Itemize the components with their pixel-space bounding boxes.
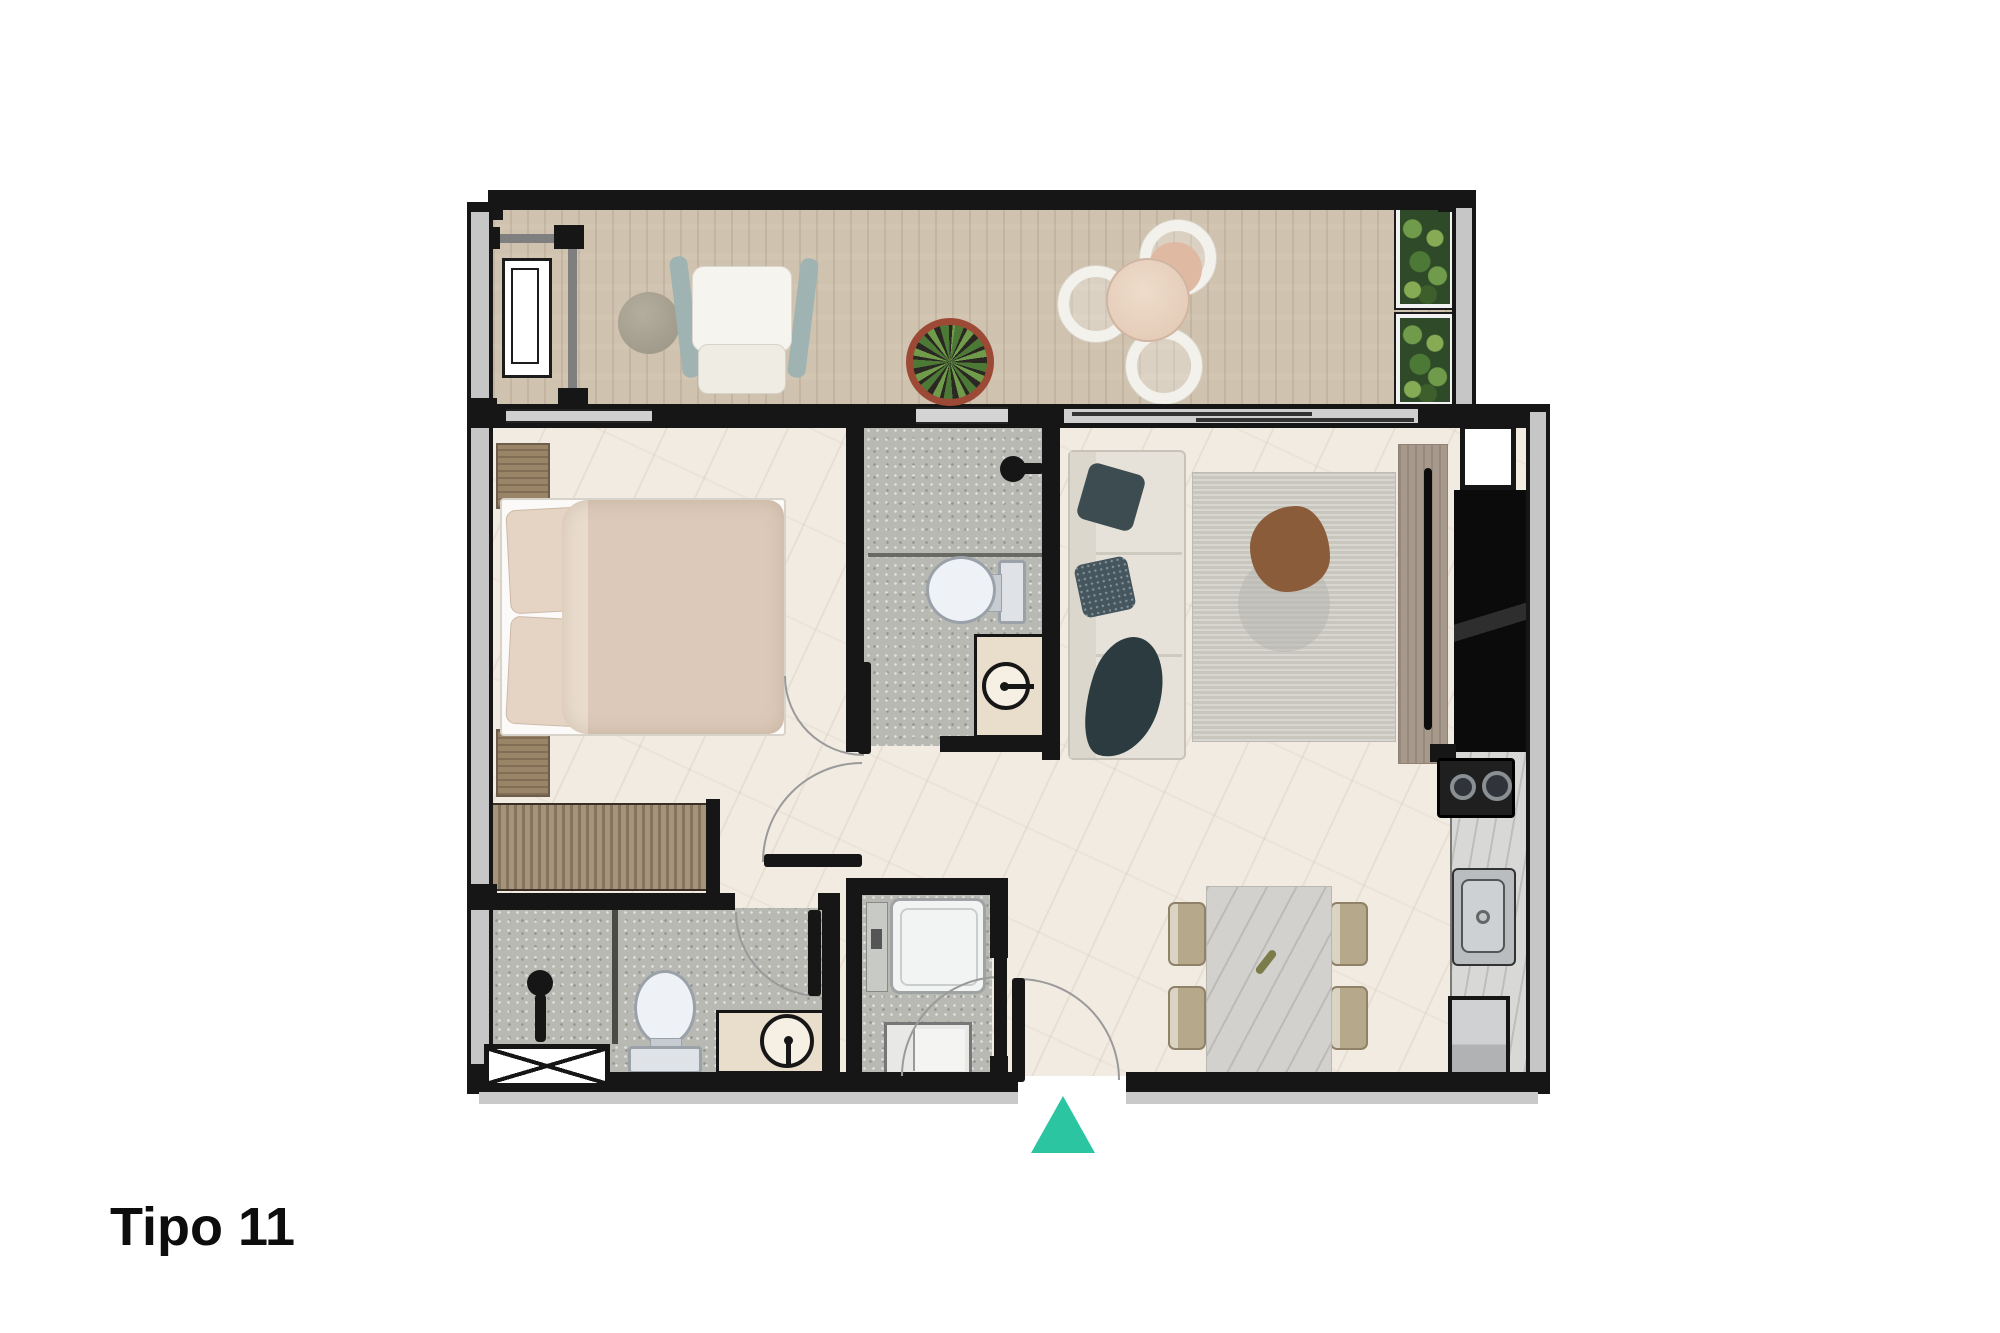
bedroom-window <box>506 409 652 423</box>
door-leaf <box>808 910 821 996</box>
dining-chair <box>1168 902 1206 966</box>
nightstand <box>496 729 550 797</box>
dining-chair <box>1330 902 1368 966</box>
wall-segment <box>467 212 493 1092</box>
toilet-icon <box>628 1046 702 1074</box>
crossed-box-icon <box>484 1044 610 1088</box>
dining-chair <box>1168 986 1206 1050</box>
wall-segment <box>846 878 862 1075</box>
floorplan-page: Tipo 11 <box>0 0 2000 1333</box>
wall-segment <box>1526 412 1550 1080</box>
dining-chair <box>1330 986 1368 1050</box>
entrance-marker-icon <box>1031 1096 1095 1153</box>
kitchen-window-box <box>1460 424 1516 490</box>
tv <box>1424 468 1432 730</box>
sofa-pillow <box>1073 555 1137 619</box>
rug-motif-brown <box>1250 506 1330 592</box>
plan-title: Tipo 11 <box>110 1196 295 1258</box>
sliding-door-panel <box>1072 412 1312 416</box>
wall-segment <box>478 893 735 910</box>
service-shaft <box>1454 490 1528 754</box>
entrance-door-leaf <box>1012 978 1025 1082</box>
door-leaf <box>858 662 871 754</box>
fridge-icon <box>1448 996 1510 1078</box>
wall-segment <box>990 878 1008 958</box>
potted-plant-icon <box>906 318 994 406</box>
ac-unit <box>502 258 552 378</box>
wardrobe-end-panel <box>706 799 720 895</box>
wall-segment <box>940 736 1060 752</box>
sliding-door-panel <box>1196 418 1414 422</box>
shower-head-icon <box>527 970 553 996</box>
faucet-bar <box>1008 684 1034 689</box>
armchair-cushion <box>698 344 786 394</box>
wall-segment <box>1126 1072 1550 1094</box>
toilet-icon <box>998 560 1026 624</box>
planter-icon <box>1396 206 1454 308</box>
wall-segment <box>488 190 1440 210</box>
planter-icon <box>1396 314 1454 406</box>
wall-segment <box>1042 416 1060 760</box>
utility-panel <box>866 902 888 992</box>
wall-sill <box>1126 1092 1538 1104</box>
faucet-bar <box>786 1044 791 1066</box>
balcony-rail-bar <box>568 238 577 396</box>
stove-icon <box>1437 758 1515 818</box>
tv-console <box>1398 444 1448 764</box>
toilet-icon <box>634 970 696 1046</box>
wardrobe <box>488 803 710 891</box>
wall-segment <box>1452 208 1476 408</box>
door-leaf <box>764 854 862 867</box>
balcony-armchair <box>692 266 792 352</box>
kitchen-sink-icon <box>1452 868 1516 966</box>
balcony-round-table <box>1106 258 1190 342</box>
sofa-seam <box>1096 552 1182 555</box>
bathroom-window <box>916 407 1008 424</box>
door-leaf <box>994 952 1007 1076</box>
wall-segment <box>822 893 840 1075</box>
shower-stem <box>1012 463 1044 474</box>
shower-divider <box>612 908 618 1044</box>
bed-duvet <box>562 500 784 734</box>
dining-table <box>1206 886 1332 1076</box>
balcony-side-table <box>618 292 680 354</box>
toilet-icon <box>926 556 996 624</box>
rail-connector <box>554 225 584 249</box>
wall-segment <box>846 878 1008 895</box>
shower-stem <box>535 994 546 1042</box>
wall-sill <box>479 1092 1018 1104</box>
